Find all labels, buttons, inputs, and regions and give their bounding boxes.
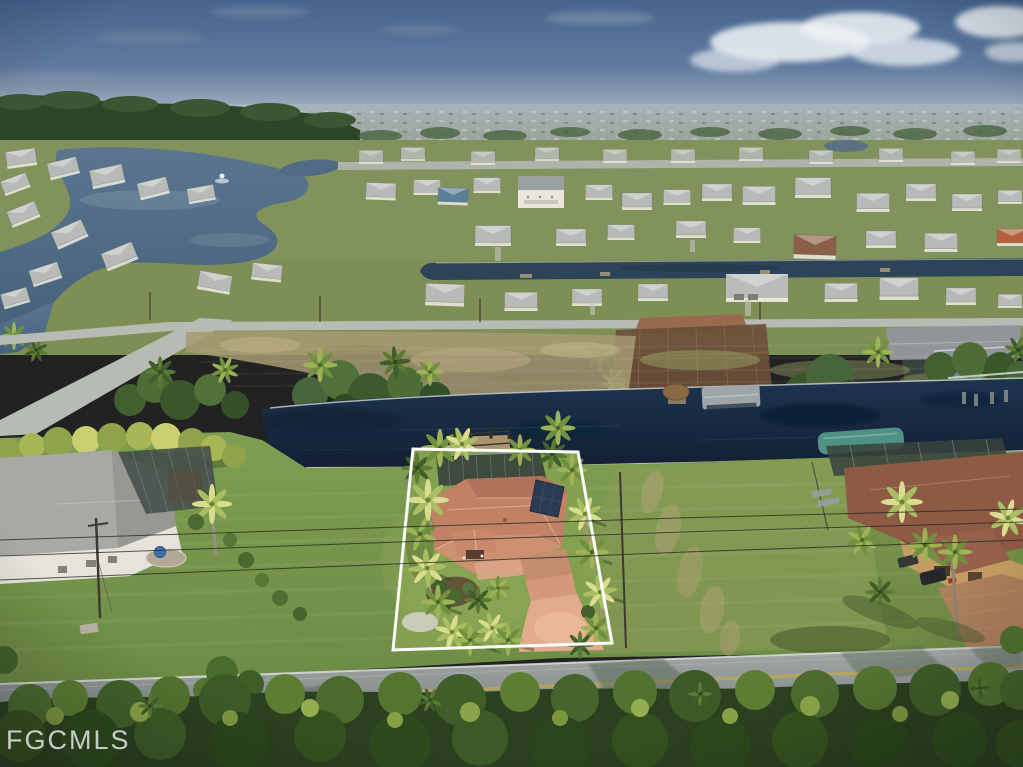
watermark-fgcmls: FGCMLS xyxy=(6,725,131,756)
aerial-photo-stage: FGCMLS xyxy=(0,0,1023,767)
aerial-photo xyxy=(0,0,1023,767)
vignette xyxy=(0,0,1023,767)
